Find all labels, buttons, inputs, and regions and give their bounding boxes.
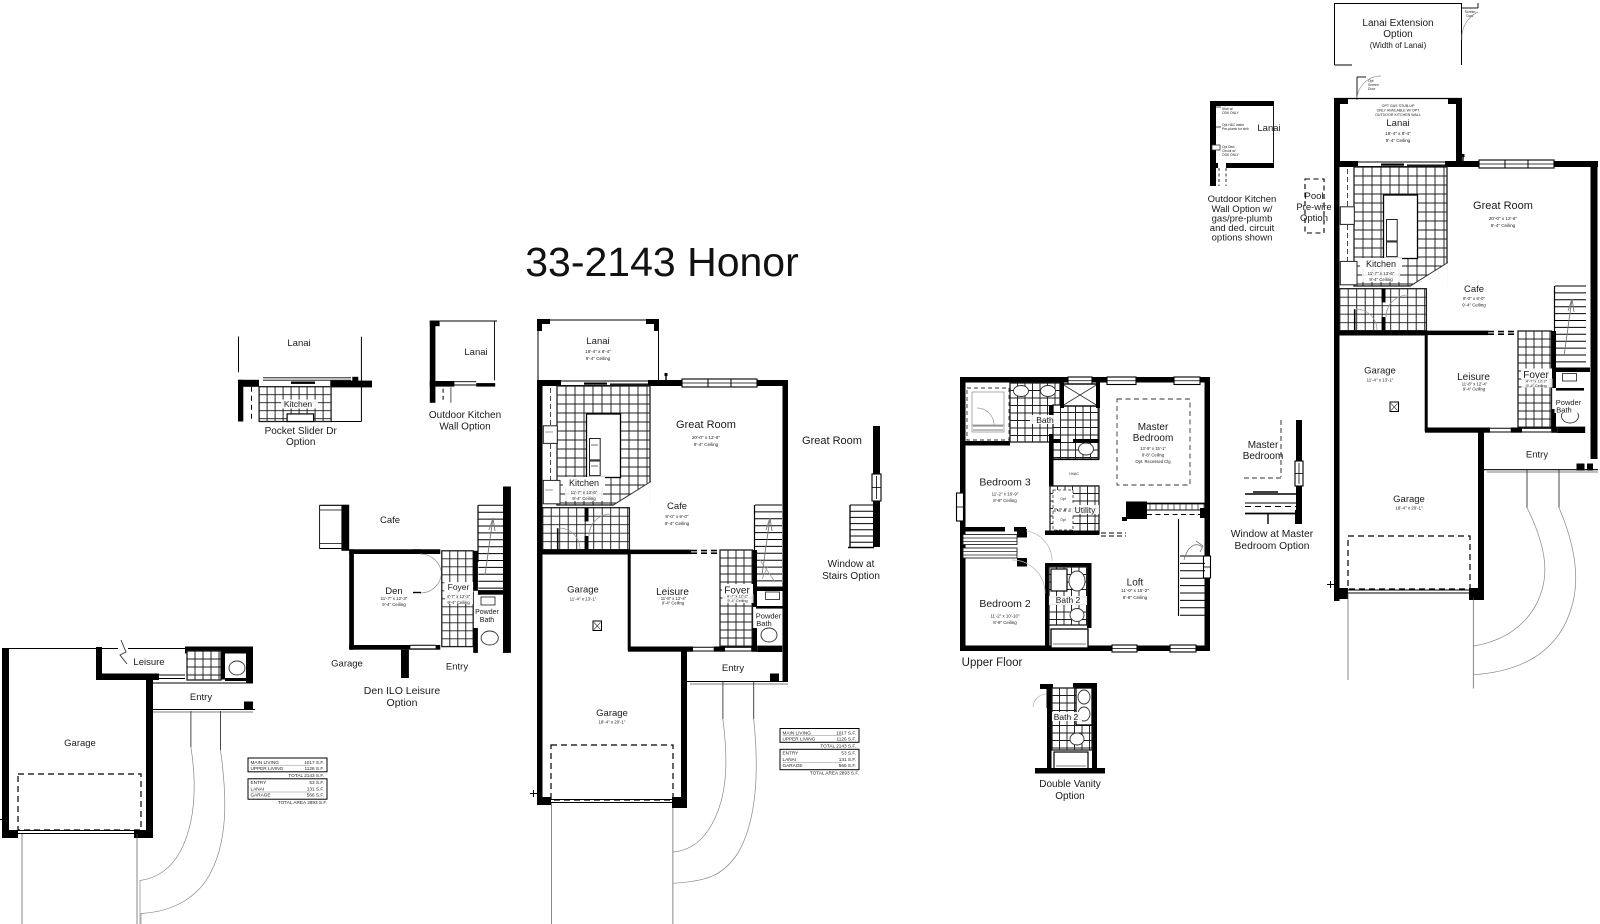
svg-text:Bedroom: Bedroom xyxy=(1243,451,1284,462)
svg-text:Garage: Garage xyxy=(64,738,96,749)
svg-text:Bath 2: Bath 2 xyxy=(1054,712,1079,722)
svg-text:11'-2" x 16'-9": 11'-2" x 16'-9" xyxy=(992,492,1019,497)
svg-text:ENTRY: ENTRY xyxy=(251,780,268,785)
svg-text:Master: Master xyxy=(1138,422,1169,433)
svg-text:18'-4" x 8'-4": 18'-4" x 8'-4" xyxy=(585,349,611,354)
svg-text:Bedroom 3: Bedroom 3 xyxy=(979,477,1031,489)
svg-text:9'-4" Ceiling: 9'-4" Ceiling xyxy=(447,600,470,605)
svg-text:131 S.F.: 131 S.F. xyxy=(839,757,856,762)
svg-text:18'-4" x 20'-1": 18'-4" x 20'-1" xyxy=(598,720,625,725)
svg-text:Master: Master xyxy=(1248,440,1279,451)
svg-text:Great Room: Great Room xyxy=(676,419,736,431)
svg-text:Lanai: Lanai xyxy=(1386,118,1409,129)
svg-text:8'-8" Ceiling: 8'-8" Ceiling xyxy=(993,620,1017,625)
svg-text:UPPER LIVING: UPPER LIVING xyxy=(783,736,816,741)
svg-text:Opt: Opt xyxy=(1060,518,1066,522)
svg-text:Kitchen: Kitchen xyxy=(284,399,313,409)
svg-text:Outdoor Kitchen: Outdoor Kitchen xyxy=(429,410,501,421)
svg-text:TOTAL AREA 2893 S.F.: TOTAL AREA 2893 S.F. xyxy=(278,800,327,805)
svg-text:11'-7" x 13'-6": 11'-7" x 13'-6" xyxy=(571,490,598,495)
svg-text:8'-0" x 9'-0": 8'-0" x 9'-0" xyxy=(665,514,689,519)
svg-text:ONLY AVAILABLE W/ OPT: ONLY AVAILABLE W/ OPT xyxy=(1377,109,1421,113)
svg-text:(Width of Lanai): (Width of Lanai) xyxy=(1370,41,1427,50)
svg-text:Stairs Option: Stairs Option xyxy=(822,571,880,582)
svg-text:Garage: Garage xyxy=(331,659,363,670)
svg-text:Pool: Pool xyxy=(1304,191,1323,202)
svg-text:13'-9" x 15'-1": 13'-9" x 15'-1" xyxy=(1140,446,1166,451)
svg-text:9'-4" Ceiling: 9'-4" Ceiling xyxy=(694,442,719,447)
svg-text:MAIN LIVING: MAIN LIVING xyxy=(783,730,812,735)
svg-text:LANAI: LANAI xyxy=(251,787,265,792)
svg-text:Option: Option xyxy=(387,697,418,709)
svg-text:8'-0" x 9'-0": 8'-0" x 9'-0" xyxy=(1463,296,1486,301)
svg-text:1017 S.F.: 1017 S.F. xyxy=(836,730,856,735)
svg-text:Lanai Extension: Lanai Extension xyxy=(1362,18,1433,29)
svg-text:Window at Master: Window at Master xyxy=(1231,529,1314,540)
svg-text:9'-4" Ceiling: 9'-4" Ceiling xyxy=(1526,384,1546,388)
svg-text:Option: Option xyxy=(1055,791,1084,802)
svg-text:Entry: Entry xyxy=(722,663,744,674)
svg-text:Foyer: Foyer xyxy=(448,582,470,592)
svg-text:Kitchen: Kitchen xyxy=(569,478,599,488)
svg-text:Leisure: Leisure xyxy=(133,657,164,668)
svg-text:Kitchen: Kitchen xyxy=(1366,259,1396,269)
svg-text:Lanai: Lanai xyxy=(586,336,609,347)
svg-text:Entry: Entry xyxy=(446,662,468,673)
svg-text:Garage: Garage xyxy=(1364,366,1396,377)
svg-text:Pre-wire: Pre-wire xyxy=(1296,202,1331,213)
svg-text:18'-4" x 20'-1": 18'-4" x 20'-1" xyxy=(1395,506,1422,511)
svg-text:UPPER LIVING: UPPER LIVING xyxy=(251,766,284,771)
svg-text:Cafe: Cafe xyxy=(667,501,687,512)
svg-text:ODK ONLY: ODK ONLY xyxy=(1222,153,1240,157)
svg-text:Garage: Garage xyxy=(1393,494,1425,505)
svg-text:Utility: Utility xyxy=(1075,505,1097,515)
svg-text:Garage: Garage xyxy=(567,585,599,596)
svg-text:1017 S.F.: 1017 S.F. xyxy=(304,760,324,765)
svg-text:GARAGE: GARAGE xyxy=(783,763,803,768)
svg-text:11'-7" x 13'-6": 11'-7" x 13'-6" xyxy=(1368,271,1395,276)
svg-text:Option: Option xyxy=(1300,213,1328,224)
svg-text:Pre-plumb for sink: Pre-plumb for sink xyxy=(1222,127,1249,131)
svg-text:131 S.F.: 131 S.F. xyxy=(307,787,324,792)
svg-text:Bedroom 2: Bedroom 2 xyxy=(979,598,1031,610)
svg-text:8'-8" Ceiling: 8'-8" Ceiling xyxy=(993,498,1017,503)
svg-text:4'-7" x 12'-2": 4'-7" x 12'-2" xyxy=(1526,380,1548,384)
svg-text:options shown: options shown xyxy=(1212,233,1273,244)
svg-text:8'-8" Ceiling: 8'-8" Ceiling xyxy=(1142,453,1165,458)
svg-text:Bedroom: Bedroom xyxy=(1133,433,1174,444)
svg-text:1126 S.F.: 1126 S.F. xyxy=(837,736,856,741)
svg-text:Bedroom Option: Bedroom Option xyxy=(1235,541,1310,552)
svg-text:TOTAL 2143 S.F.: TOTAL 2143 S.F. xyxy=(288,773,324,778)
svg-text:33-2143 Honor: 33-2143 Honor xyxy=(525,239,799,285)
svg-text:Cafe: Cafe xyxy=(1464,284,1484,295)
svg-text:TOTAL 2143 S.F.: TOTAL 2143 S.F. xyxy=(820,743,856,748)
svg-text:9'-4" Ceiling: 9'-4" Ceiling xyxy=(727,599,747,603)
svg-text:9'-4" Ceiling: 9'-4" Ceiling xyxy=(1369,277,1393,282)
svg-text:Option: Option xyxy=(1383,29,1412,40)
svg-text:Opt: Opt xyxy=(1060,497,1066,501)
svg-text:9'-4" Ceiling: 9'-4" Ceiling xyxy=(1462,303,1486,308)
svg-text:Great Room: Great Room xyxy=(802,435,862,447)
svg-text:9'-4" Ceiling: 9'-4" Ceiling xyxy=(1491,223,1516,228)
svg-text:ODK ONLY: ODK ONLY xyxy=(1222,111,1240,115)
svg-text:Den ILO Leisure: Den ILO Leisure xyxy=(364,685,441,697)
svg-text:9'-4" Ceiling: 9'-4" Ceiling xyxy=(665,521,690,526)
svg-text:Great Room: Great Room xyxy=(1473,200,1533,212)
svg-text:Garage: Garage xyxy=(596,708,628,719)
svg-text:53 S.F.: 53 S.F. xyxy=(309,780,324,785)
svg-text:Loft: Loft xyxy=(1127,578,1144,589)
svg-text:11'-0" x 15'-2": 11'-0" x 15'-2" xyxy=(1121,588,1149,593)
svg-text:1126 S.F.: 1126 S.F. xyxy=(305,766,324,771)
svg-text:LANAI: LANAI xyxy=(783,757,797,762)
svg-text:566 S.F.: 566 S.F. xyxy=(839,763,856,768)
svg-text:Opt. Recessed Clg: Opt. Recessed Clg xyxy=(1135,459,1171,464)
svg-text:Option: Option xyxy=(286,437,315,448)
svg-text:MAIN LIVING: MAIN LIVING xyxy=(251,760,280,765)
svg-text:Lanai: Lanai xyxy=(287,338,310,349)
svg-text:OPT GAS STUB-UP: OPT GAS STUB-UP xyxy=(1382,104,1415,108)
svg-text:11'-7" x 12'-3": 11'-7" x 12'-3" xyxy=(381,596,408,601)
svg-text:9'-4" Ceiling: 9'-4" Ceiling xyxy=(662,601,685,606)
svg-text:11'-2" x 10'-10": 11'-2" x 10'-10" xyxy=(990,614,1020,619)
svg-text:20'-0" x 12'-6": 20'-0" x 12'-6" xyxy=(1489,216,1518,221)
svg-text:Bath: Bath xyxy=(1556,406,1571,415)
svg-text:8'-8" Ceiling: 8'-8" Ceiling xyxy=(1123,595,1148,600)
svg-text:Bath: Bath xyxy=(1036,415,1054,425)
svg-text:Lanai: Lanai xyxy=(464,347,487,358)
svg-text:11'-4" x 13'-1": 11'-4" x 13'-1" xyxy=(1367,378,1394,383)
svg-text:TOTAL AREA 2893 S.F.: TOTAL AREA 2893 S.F. xyxy=(810,771,859,776)
svg-text:11'-4" x 13'-1": 11'-4" x 13'-1" xyxy=(570,597,597,602)
svg-text:GARAGE: GARAGE xyxy=(251,793,271,798)
svg-text:566 S.F.: 566 S.F. xyxy=(307,793,324,798)
svg-text:Pocket Slider Dr: Pocket Slider Dr xyxy=(265,426,338,437)
svg-text:Bath 2: Bath 2 xyxy=(1056,595,1081,605)
svg-text:OUTDOOR KITCHEN WALL: OUTDOOR KITCHEN WALL xyxy=(1375,113,1421,117)
svg-text:Door: Door xyxy=(1368,87,1376,91)
svg-text:18'-4" x 8'-4": 18'-4" x 8'-4" xyxy=(1385,131,1411,136)
svg-text:9'-4" Ceiling: 9'-4" Ceiling xyxy=(1463,387,1486,392)
svg-text:Bath: Bath xyxy=(480,617,495,624)
svg-text:9'-4" Ceiling: 9'-4" Ceiling xyxy=(586,356,611,361)
svg-text:Wall Option: Wall Option xyxy=(439,422,490,433)
svg-text:ENTRY: ENTRY xyxy=(783,751,800,756)
svg-text:Powder: Powder xyxy=(475,609,499,616)
svg-text:Entry: Entry xyxy=(190,692,212,703)
svg-text:Upper Floor: Upper Floor xyxy=(962,657,1023,669)
svg-text:Window at: Window at xyxy=(828,559,875,570)
svg-text:9'-4" Ceiling: 9'-4" Ceiling xyxy=(572,496,596,501)
svg-text:Bath: Bath xyxy=(756,619,771,628)
svg-text:4'-7" x 12'-2": 4'-7" x 12'-2" xyxy=(727,595,749,599)
svg-text:Double Vanity: Double Vanity xyxy=(1039,779,1101,790)
svg-text:Lanai: Lanai xyxy=(1257,123,1280,134)
svg-text:9'-4" Ceiling: 9'-4" Ceiling xyxy=(1386,138,1411,143)
svg-text:9'-4" Ceiling: 9'-4" Ceiling xyxy=(382,602,406,607)
svg-text:53 S.F.: 53 S.F. xyxy=(841,751,856,756)
svg-text:Entry: Entry xyxy=(1526,450,1548,461)
svg-text:Cafe: Cafe xyxy=(380,515,400,526)
svg-text:HVAC: HVAC xyxy=(1069,472,1079,476)
svg-text:4'-7" x 12'-2": 4'-7" x 12'-2" xyxy=(447,594,471,599)
svg-text:20'-0" x 12'-6": 20'-0" x 12'-6" xyxy=(692,435,721,440)
